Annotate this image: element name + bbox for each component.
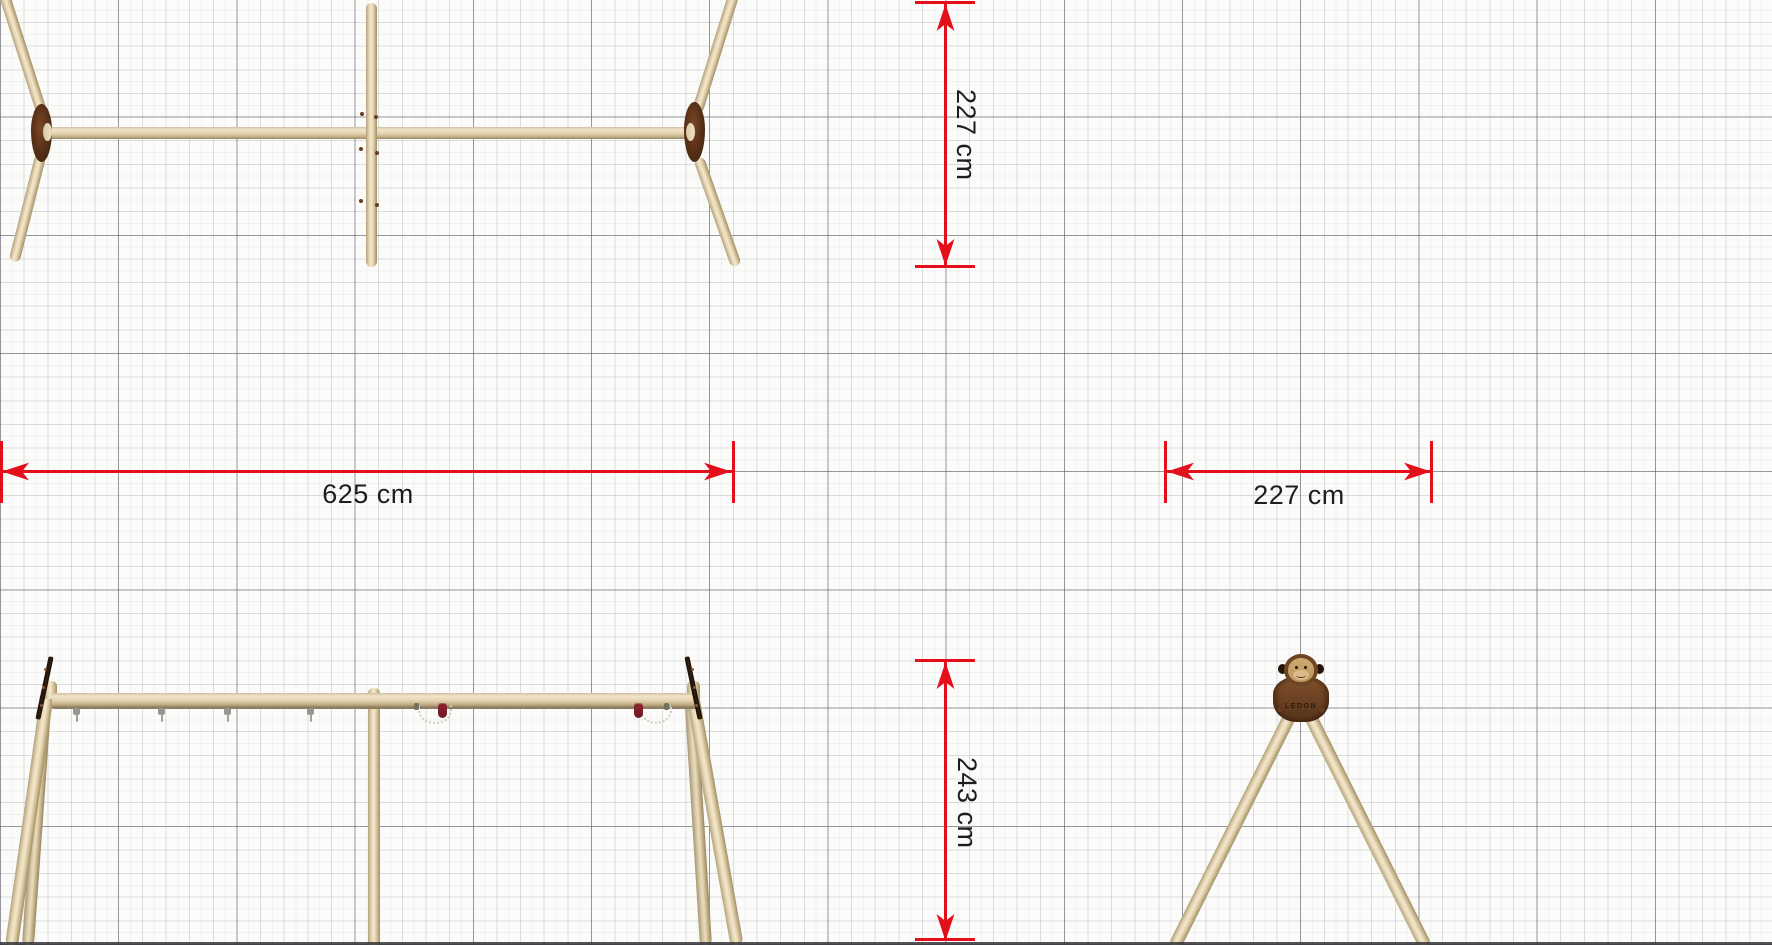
dimension-label-footprint-depth: 227 cm xyxy=(1219,480,1379,511)
beam-hook-pin-icon xyxy=(227,714,229,722)
bolt-icon xyxy=(1278,708,1282,712)
top-view-left-bracket-knob xyxy=(43,123,52,141)
bolt-icon xyxy=(359,199,363,203)
dim-cap-bottom xyxy=(915,938,975,941)
bolt-icon xyxy=(695,704,698,707)
chain-link-icon xyxy=(414,703,419,710)
bolt-icon xyxy=(42,686,45,689)
side-view-leg-right xyxy=(1297,699,1432,945)
dim-cap-right xyxy=(1430,441,1433,503)
dimension-label-frame-height: 243 cm xyxy=(951,718,982,888)
bolt-icon xyxy=(375,151,379,155)
top-view xyxy=(0,0,760,280)
bolt-icon xyxy=(40,704,43,707)
bolt-icon xyxy=(691,668,694,671)
dim-cap-top xyxy=(915,1,975,4)
dimension-line xyxy=(944,4,947,266)
bolt-icon xyxy=(359,147,363,151)
top-view-center-pole xyxy=(366,3,377,267)
top-view-right-bracket-knob xyxy=(686,123,695,141)
bolt-icon xyxy=(1320,708,1324,712)
bolt-icon xyxy=(375,203,379,207)
top-view-leg-lower-right xyxy=(693,156,741,267)
dim-cap-left xyxy=(0,441,3,503)
front-view-center-pole xyxy=(368,688,380,945)
side-view-leg-left xyxy=(1168,699,1303,945)
top-view-leg-upper-left xyxy=(0,0,48,118)
top-view-leg-lower-left xyxy=(9,153,47,262)
bolt-icon xyxy=(44,668,47,671)
front-view xyxy=(0,640,760,945)
monkey-eye-icon xyxy=(1304,666,1307,669)
top-view-leg-upper-right xyxy=(692,0,740,114)
monkey-eye-icon xyxy=(1295,666,1298,669)
dim-cap-top xyxy=(915,659,975,662)
dimension-label-overall-width: 625 cm xyxy=(288,479,448,510)
bolt-icon xyxy=(374,115,378,119)
monkey-bracket-logo: LEDON xyxy=(1270,654,1332,724)
swing-shackle-icon xyxy=(634,703,643,718)
swing-shackle-icon xyxy=(438,703,447,718)
dim-cap-left xyxy=(1164,441,1167,503)
bolt-icon xyxy=(693,686,696,689)
front-view-beam xyxy=(52,693,696,709)
beam-hook-pin-icon xyxy=(310,714,312,722)
monkey-mouth-icon xyxy=(1296,673,1306,678)
dimension-line xyxy=(1167,470,1431,473)
chain-link-icon xyxy=(664,703,669,710)
dim-cap-bottom xyxy=(915,265,975,268)
bolt-icon xyxy=(360,112,364,116)
beam-hook-pin-icon xyxy=(76,714,78,722)
dimension-line xyxy=(944,662,947,941)
dimension-label-frame-depth: 227 cm xyxy=(950,50,981,220)
dim-cap-right xyxy=(732,441,735,503)
dimension-drawing-canvas: LEDON 625 cm 227 cm 227 cm xyxy=(0,0,1772,945)
dimension-line xyxy=(2,470,732,473)
beam-hook-pin-icon xyxy=(161,714,163,722)
side-view: LEDON xyxy=(1150,640,1510,945)
